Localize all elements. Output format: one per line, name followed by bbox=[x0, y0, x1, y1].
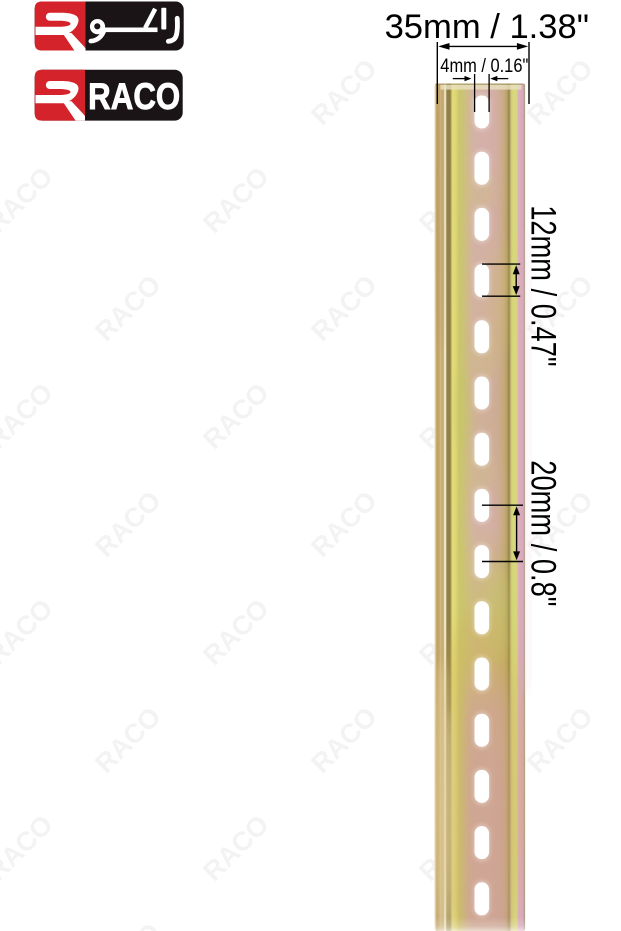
svg-text:RACO: RACO bbox=[305, 53, 382, 130]
svg-text:RACO: RACO bbox=[0, 593, 59, 670]
svg-text:RACO: RACO bbox=[197, 161, 274, 238]
svg-text:RACO: RACO bbox=[305, 701, 382, 778]
svg-text:RACO: RACO bbox=[521, 701, 598, 778]
svg-text:RACO: RACO bbox=[0, 809, 59, 886]
svg-text:RACO: RACO bbox=[305, 485, 382, 562]
svg-text:RACO: RACO bbox=[89, 701, 166, 778]
svg-text:RACO: RACO bbox=[197, 593, 274, 670]
svg-text:RACO: RACO bbox=[89, 917, 166, 931]
svg-text:RACO: RACO bbox=[305, 269, 382, 346]
svg-text:RACO: RACO bbox=[197, 377, 274, 454]
svg-text:RACO: RACO bbox=[89, 485, 166, 562]
svg-text:20mm / 0.8": 20mm / 0.8" bbox=[523, 460, 562, 606]
svg-text:RACO: RACO bbox=[521, 53, 598, 130]
svg-text:4mm / 0.16": 4mm / 0.16" bbox=[440, 55, 528, 76]
svg-text:RACO: RACO bbox=[0, 377, 59, 454]
svg-text:RACO: RACO bbox=[88, 77, 180, 118]
svg-text:RACO: RACO bbox=[0, 161, 59, 238]
svg-text:35mm / 1.38": 35mm / 1.38" bbox=[385, 8, 589, 46]
svg-text:RACO: RACO bbox=[89, 269, 166, 346]
svg-text:12mm / 0.47": 12mm / 0.47" bbox=[523, 205, 562, 366]
svg-text:RACO: RACO bbox=[197, 809, 274, 886]
